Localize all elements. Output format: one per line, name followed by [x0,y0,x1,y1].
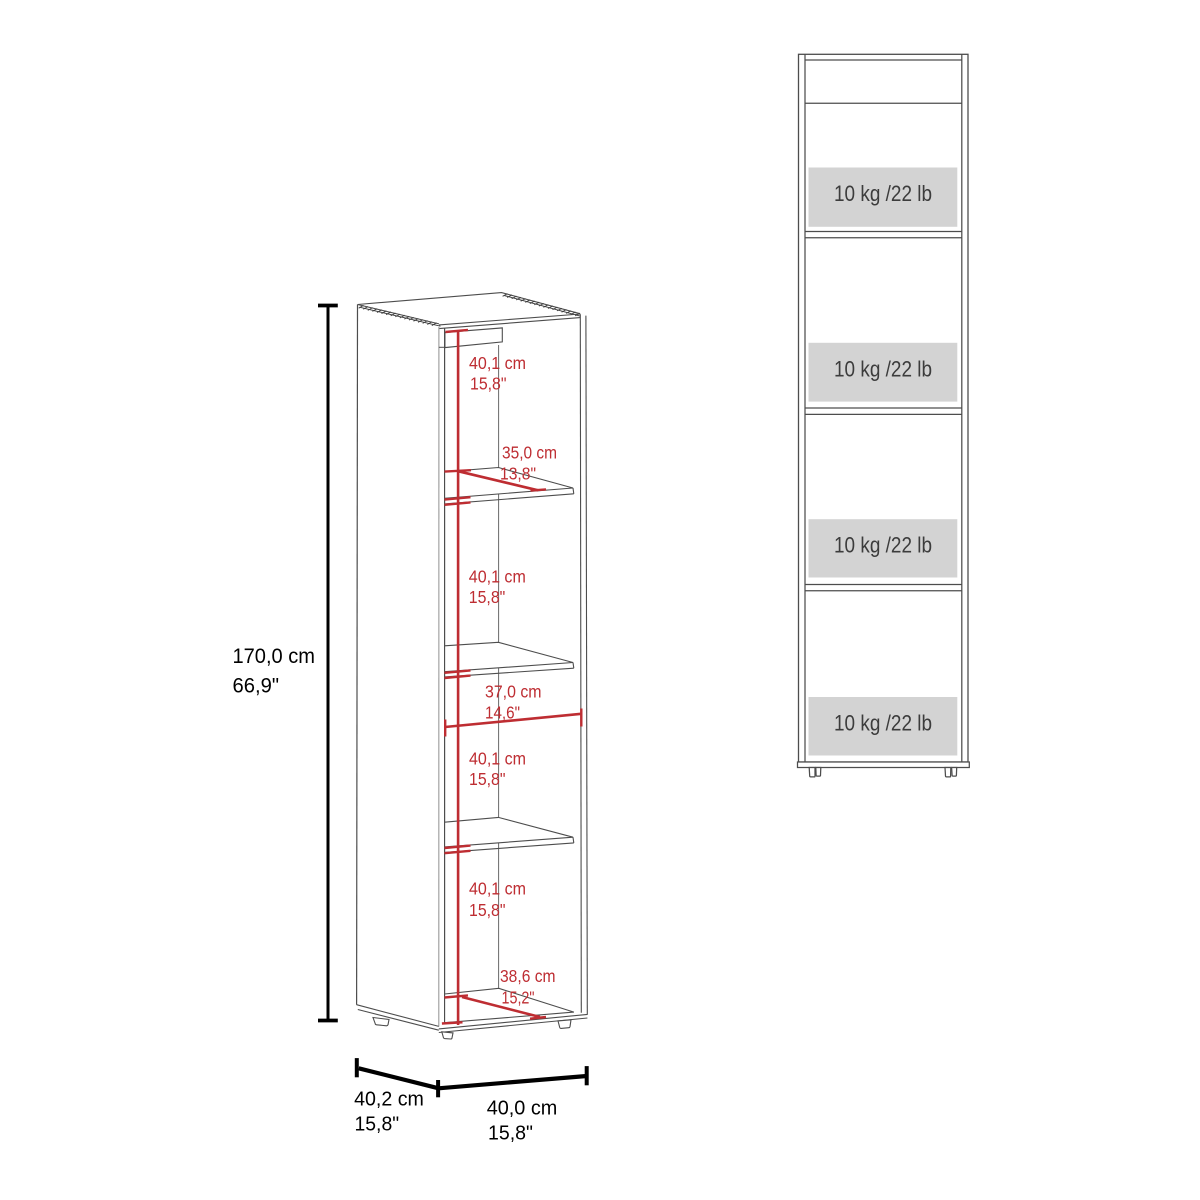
svg-text:66,9": 66,9" [233,674,280,698]
svg-text:15,8": 15,8" [470,373,507,393]
svg-text:15,8": 15,8" [469,900,506,920]
svg-text:15,8": 15,8" [355,1114,400,1136]
svg-text:40,1 cm: 40,1 cm [469,566,526,586]
svg-text:15,8": 15,8" [469,587,506,607]
svg-text:15,8": 15,8" [469,769,506,789]
svg-text:15,2": 15,2" [502,987,535,1007]
svg-text:40,0 cm: 40,0 cm [487,1098,558,1120]
svg-text:38,6 cm: 38,6 cm [500,966,556,986]
svg-text:10 kg /22 lb: 10 kg /22 lb [834,356,932,381]
svg-text:37,0 cm: 37,0 cm [485,681,542,701]
svg-text:10 kg /22 lb: 10 kg /22 lb [834,711,932,736]
svg-text:15,8": 15,8" [488,1123,533,1145]
svg-text:40,1 cm: 40,1 cm [469,878,526,898]
svg-text:35,0 cm: 35,0 cm [502,442,557,462]
svg-text:40,1 cm: 40,1 cm [469,353,526,373]
svg-text:13,8": 13,8" [500,463,536,483]
svg-text:40,2 cm: 40,2 cm [354,1089,424,1111]
svg-text:14,6": 14,6" [485,702,520,722]
svg-text:40,1 cm: 40,1 cm [469,748,526,768]
svg-text:10 kg /22 lb: 10 kg /22 lb [834,181,932,206]
svg-text:10 kg /22 lb: 10 kg /22 lb [834,533,932,558]
svg-text:170,0 cm: 170,0 cm [233,644,316,668]
